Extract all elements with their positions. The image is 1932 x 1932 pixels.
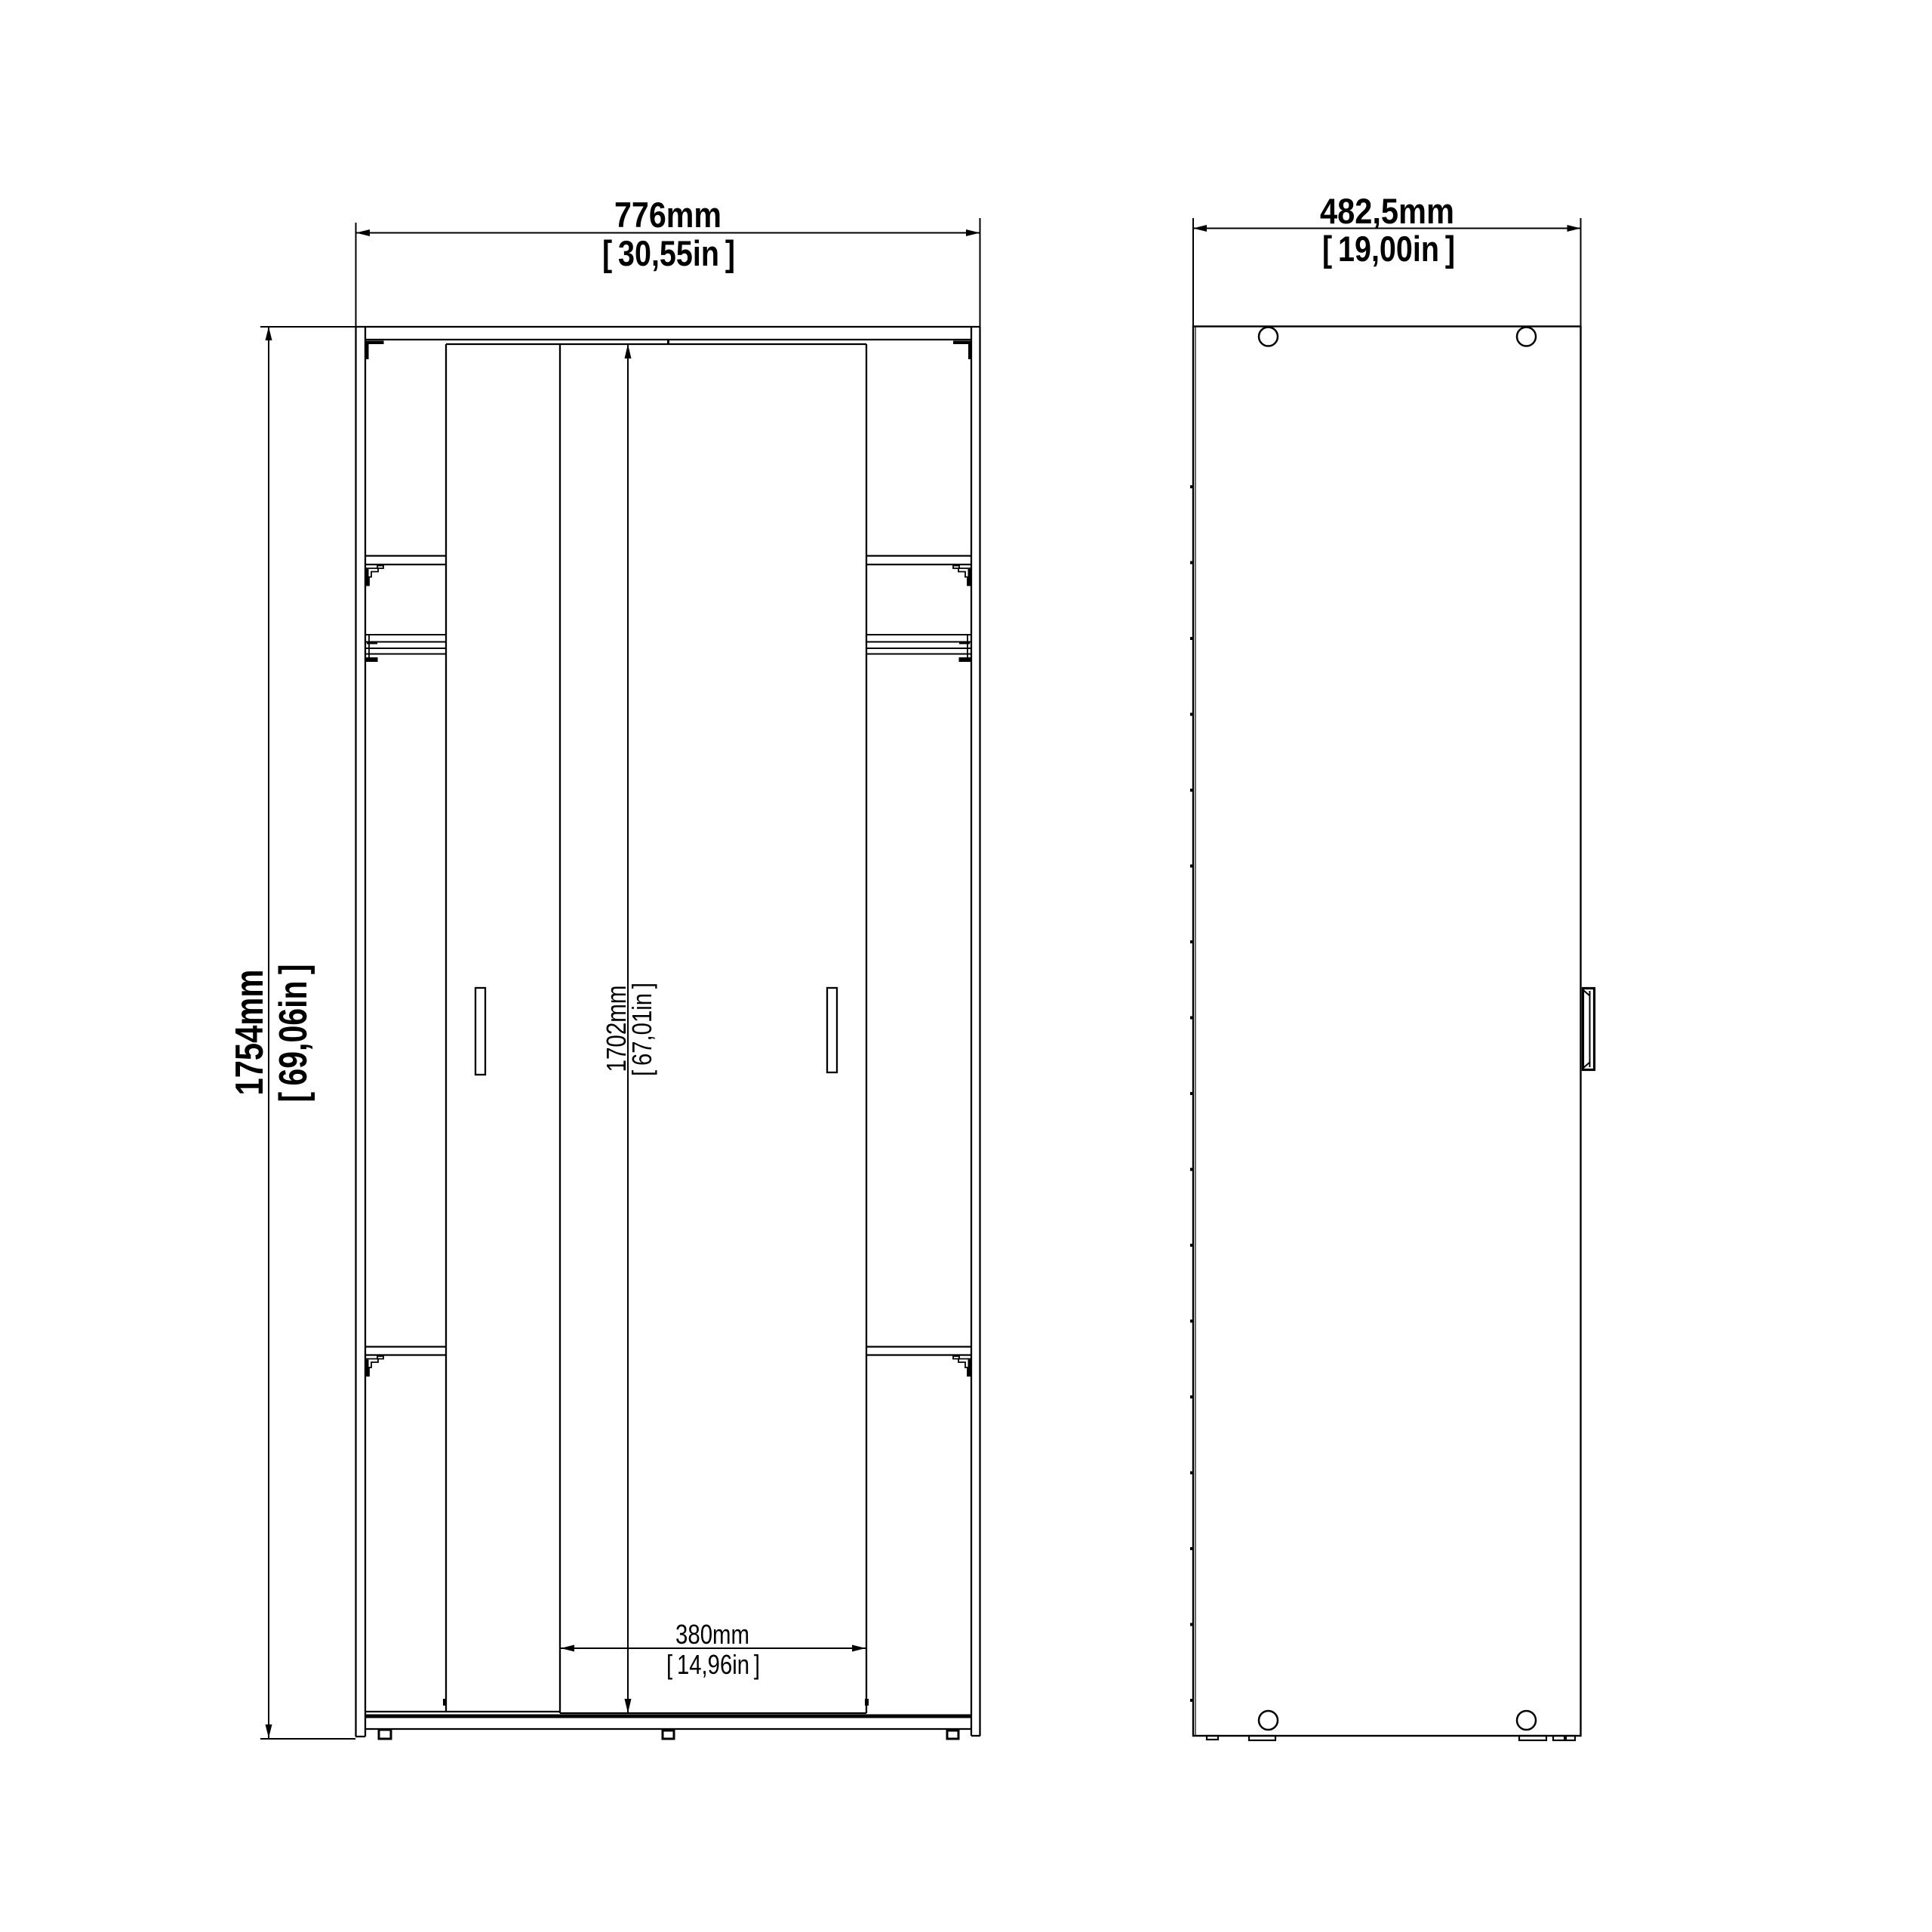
svg-text:380mm: 380mm bbox=[675, 1619, 749, 1650]
svg-text:482,5mm: 482,5mm bbox=[1320, 191, 1454, 231]
svg-text:[ 67,01in ]: [ 67,01in ] bbox=[626, 983, 657, 1076]
svg-text:776mm: 776mm bbox=[614, 195, 721, 235]
svg-text:1754mm: 1754mm bbox=[228, 970, 272, 1096]
svg-text:[ 69,06in ]: [ 69,06in ] bbox=[272, 964, 315, 1103]
svg-text:[ 14,96in ]: [ 14,96in ] bbox=[666, 1649, 760, 1680]
svg-text:[ 30,55in ]: [ 30,55in ] bbox=[602, 233, 735, 273]
svg-text:[ 19,00in ]: [ 19,00in ] bbox=[1322, 229, 1455, 269]
